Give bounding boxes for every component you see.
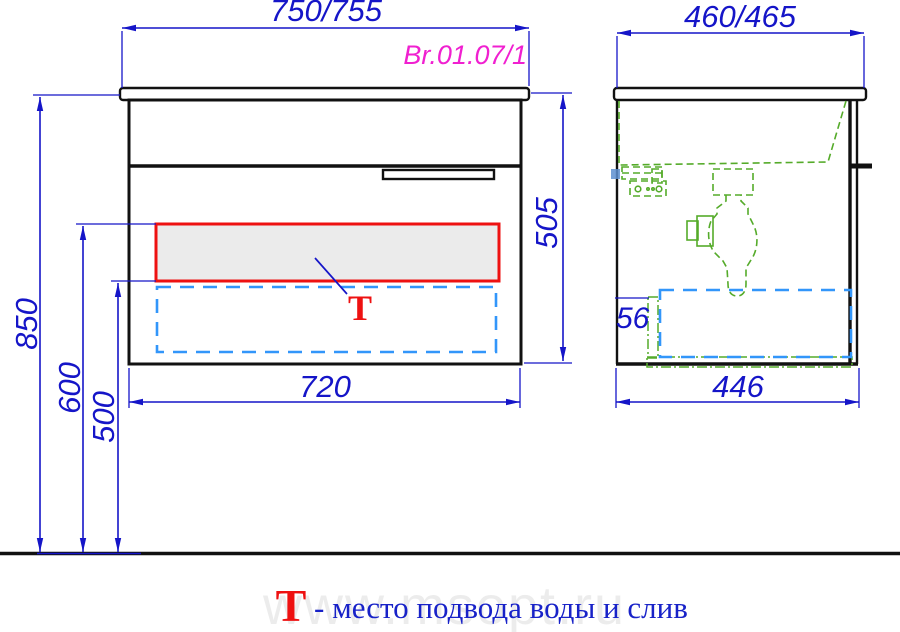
dim-depth-top-label: 460/465 bbox=[684, 0, 797, 34]
side-countertop bbox=[614, 88, 866, 100]
dim-width-bottom-label: 720 bbox=[299, 369, 351, 404]
t-marker-label: Т bbox=[348, 288, 372, 328]
dim-height-cabinet: 505 bbox=[524, 93, 572, 363]
dim-depth-bottom-label: 446 bbox=[712, 369, 764, 404]
vanity-dimension-drawing: Т bbox=[0, 0, 900, 632]
legend-symbol: Т bbox=[276, 580, 307, 631]
side-view bbox=[611, 88, 872, 367]
dim-height-supply-label: 600 bbox=[52, 362, 87, 414]
dim-height-total: 850 bbox=[9, 95, 120, 552]
product-code-label: Br.01.07/1 bbox=[403, 40, 527, 70]
siphon-valve-outer bbox=[697, 216, 713, 246]
side-dashed-zone bbox=[660, 290, 851, 357]
footer: www.msopt.ru Т - место подвода воды и сл… bbox=[262, 576, 688, 632]
dim-depth-bottom: 446 bbox=[616, 368, 859, 408]
legend-text: - место подвода воды и слив bbox=[314, 590, 688, 625]
dim-height-cabinet-label: 505 bbox=[529, 196, 564, 248]
dim-height-drain-label: 500 bbox=[86, 391, 121, 443]
dim-offset: 56 bbox=[615, 298, 650, 335]
siphon-drain-trap bbox=[687, 169, 757, 296]
dim-width-bottom: 720 bbox=[129, 368, 520, 408]
front-view: Т bbox=[120, 88, 529, 364]
bracket-clip bbox=[611, 169, 620, 179]
fixing-bracket-detail bbox=[611, 167, 666, 196]
sink-basin-outline bbox=[619, 101, 846, 165]
dim-offset-label: 56 bbox=[616, 302, 650, 335]
technical-drawing-canvas: Т bbox=[0, 0, 900, 632]
dim-height-total-label: 850 bbox=[9, 298, 44, 350]
front-countertop bbox=[120, 88, 529, 100]
dim-width-top-label: 750/755 bbox=[270, 0, 383, 28]
dim-depth-top: 460/465 bbox=[617, 0, 864, 88]
